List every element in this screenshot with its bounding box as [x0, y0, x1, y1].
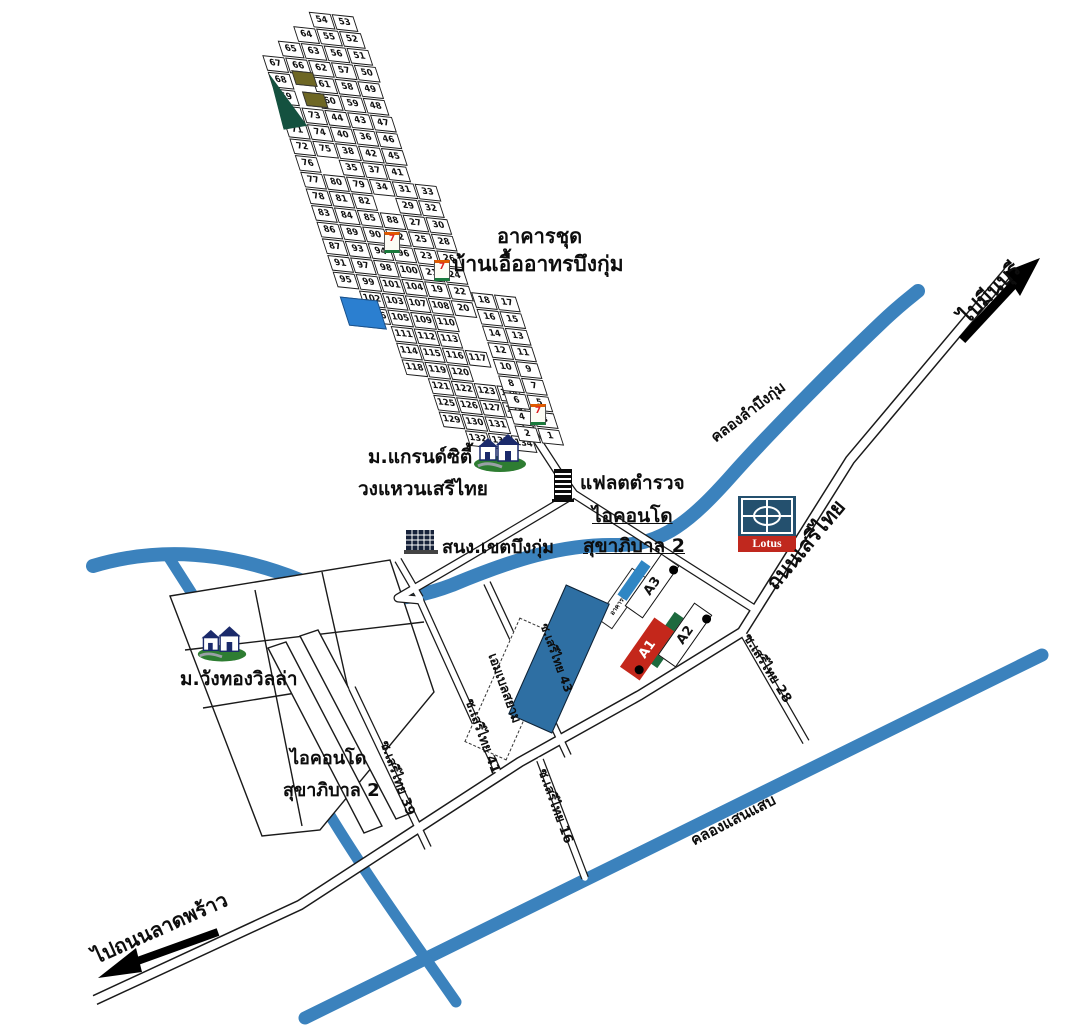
plot-cell: 47 [370, 115, 397, 133]
plot-cell: 51 [346, 48, 373, 66]
plot-cell: 49 [357, 81, 384, 99]
plot-cell: 50 [354, 65, 381, 83]
house-icon-wangthong [196, 622, 248, 662]
seven-eleven-icon-3: 7 [530, 404, 546, 425]
police-flats-icon [552, 468, 574, 502]
plot-cell: 110 [433, 314, 460, 332]
grandcity-label-line2: วงแหวนเสรีไทย [358, 474, 488, 504]
plot-cell: 45 [381, 148, 408, 166]
road-canal-layer [0, 0, 1089, 1031]
plot-cell: 117 [465, 350, 492, 368]
plot-cell: 41 [384, 164, 411, 182]
plot-cell: 120 [447, 364, 474, 382]
grandcity-label-line1: ม.แกรนด์ซิตี้ [368, 442, 472, 472]
icondo-left-line2: สุขาภิบาล 2 [283, 775, 380, 804]
plot-cell: 33 [414, 184, 441, 202]
icondo-left-line1: ไอคอนโด [290, 743, 366, 772]
district-office-label: สนง.เขตบึงกุ่ม [442, 532, 554, 561]
block-a1-label: A1 [635, 637, 658, 661]
map-canvas: 5453645552656356516766625750686158496960… [0, 0, 1089, 1031]
block-a1-dot [633, 663, 646, 676]
seven-eleven-icon-1: 7 [384, 232, 400, 253]
plot-cell: 32 [418, 200, 445, 218]
police-flats-label: แฟลตตำรวจ [580, 468, 685, 498]
plot-cell: 113 [436, 331, 463, 349]
icondo-right-line2: สุขาภิบาล 2 [583, 531, 685, 561]
condo-label-line2: บ้านเอื้ออาทรบึงกุ่ม [452, 248, 624, 281]
wangthong-label: ม.วังทองวิลล่า [180, 664, 298, 694]
seven-eleven-icon-2: 7 [434, 260, 450, 281]
plot-cell: 46 [375, 131, 402, 149]
plot-cell: 53 [332, 14, 359, 32]
icondo-right-line1: ไอคอนโด [592, 501, 673, 531]
house-icon-grandcity [472, 430, 528, 472]
plot-cell: 30 [425, 217, 452, 235]
district-office-icon [404, 528, 438, 558]
plot-cell: 48 [363, 98, 390, 116]
plot-cell: 52 [339, 31, 366, 49]
